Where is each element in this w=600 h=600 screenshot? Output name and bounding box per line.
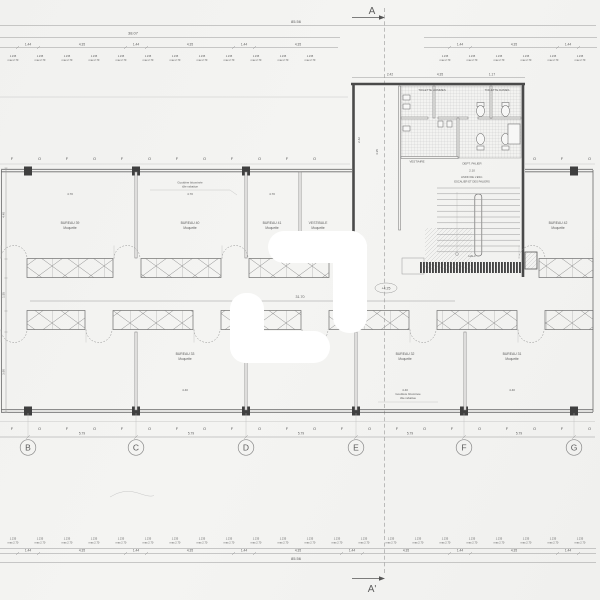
door-swing-arc <box>194 330 220 343</box>
facade-panel-letter: O <box>258 426 261 431</box>
facade-panel-letter: O <box>313 426 316 431</box>
toilet-right-label: TOILETTE DAMES <box>485 88 510 92</box>
dim-cluster: 1.235 <box>118 54 125 58</box>
grid-bubble-D: D <box>238 440 254 456</box>
room-floor-label: Moquette <box>265 226 279 230</box>
dim-text: 4.35 <box>79 43 85 47</box>
room-width-dim: 4.70 <box>67 192 73 196</box>
shaft <box>525 252 537 269</box>
grid-bubble-F: F <box>456 440 472 456</box>
partition-wall <box>135 332 137 410</box>
dim-cluster: 1.235 <box>118 537 125 541</box>
glazed-partition-strip <box>27 311 85 330</box>
dim-cluster: max 2.70 <box>548 58 559 62</box>
facade-panel-letter: F <box>176 426 179 431</box>
dim-cluster: 1.235 <box>226 54 233 58</box>
bay-dim: 5.79 <box>188 432 194 436</box>
dim-text: 1.44 <box>349 549 355 553</box>
dim-cluster: max 2.70 <box>332 541 343 545</box>
dim-text: 2.42 <box>357 137 361 143</box>
dim-cluster: 1.235 <box>64 537 71 541</box>
floor-plan-drawing: 85.56 38.07 A A' <box>0 0 600 600</box>
dim-cluster: max 2.70 <box>251 541 262 545</box>
dim-cluster: 1.235 <box>550 54 557 58</box>
facade-panel-letter: O <box>148 426 151 431</box>
facade-panel-letter: O <box>533 426 536 431</box>
room-width-dim: 4.40 <box>182 388 188 392</box>
dim-cluster: 1.235 <box>550 537 557 541</box>
dim-cluster: max 2.70 <box>62 58 73 62</box>
top-facade-wall <box>0 164 595 172</box>
dim-cluster: 1.235 <box>199 54 206 58</box>
dim-text: 1.44 <box>25 43 31 47</box>
facade-panel-letter: O <box>203 156 206 161</box>
shower <box>508 124 520 144</box>
dim-cluster: 1.235 <box>199 537 206 541</box>
facade-panel-letter: O <box>313 156 316 161</box>
grid-bubble-B: B <box>20 440 36 456</box>
dim-cluster: 1.235 <box>10 54 17 58</box>
dim-cluster: max 2.70 <box>548 541 559 545</box>
wc-bowl <box>502 106 510 117</box>
dim-cluster: max 2.70 <box>62 541 73 545</box>
facade-panel-letter: F <box>451 426 454 431</box>
facade-panel-letter: F <box>506 426 509 431</box>
dim-cluster: 1.235 <box>442 54 449 58</box>
dim-cluster: max 2.70 <box>278 58 289 62</box>
wc-bowl <box>477 106 485 117</box>
room-floor-label: Moquette <box>311 226 325 230</box>
bay-dim: 5.79 <box>79 432 85 436</box>
dim-text: 4.35 <box>295 549 301 553</box>
grid-letter: G <box>571 443 578 453</box>
glazed-partition-strip <box>545 311 593 330</box>
glazed-partition-strip <box>437 311 517 330</box>
dim-cluster: 1.235 <box>91 537 98 541</box>
glazed-partition-strip <box>141 259 221 278</box>
room-label: BUREAU 42 <box>549 221 568 225</box>
grid-letter: F <box>461 443 466 453</box>
dim-cluster: max 2.70 <box>251 58 262 62</box>
facade-panel-letter: F <box>286 156 289 161</box>
dim-text: 4.35 <box>437 73 443 77</box>
overall-dim-bottom: 85.56 <box>291 556 302 561</box>
wc-tank <box>477 146 484 150</box>
section-arrow-bottom <box>379 576 385 581</box>
vestibule-wall <box>399 86 401 230</box>
landing-label: DEPT. PALIER <box>462 162 481 166</box>
dim-cluster: 1.235 <box>361 537 368 541</box>
dim-text: 4.35 <box>403 549 409 553</box>
room-label: BUREAU 32 <box>396 352 415 356</box>
room-floor-label: Moquette <box>505 357 519 361</box>
dim-cluster: max 2.70 <box>575 541 586 545</box>
dim-cluster: 1.235 <box>145 537 152 541</box>
room-floor-label: Moquette <box>183 226 197 230</box>
facade-panel-letter: O <box>148 156 151 161</box>
dim-cluster: max 2.70 <box>197 58 208 62</box>
dim-cluster: 1.235 <box>469 54 476 58</box>
dim-cluster: 1.235 <box>37 537 44 541</box>
hall-label: HALL <box>468 254 476 258</box>
dim-cluster: 1.235 <box>496 537 503 541</box>
dim-cluster: 1.235 <box>388 537 395 541</box>
section-marker-top: A <box>352 6 385 20</box>
facade-panel-letter: F <box>561 156 564 161</box>
room-floor-label: Moquette <box>551 226 565 230</box>
grid-letter: D <box>243 443 249 453</box>
gutter-annotation-bottom: Gouttière bituminée tôle rabattue <box>378 392 438 402</box>
dim-cluster: max 2.70 <box>224 541 235 545</box>
glazed-partition-strip <box>539 259 593 278</box>
dim-cluster: max 2.70 <box>197 541 208 545</box>
dim-cluster: max 2.70 <box>575 58 586 62</box>
dim-cluster: 1.235 <box>280 537 287 541</box>
dim-text: 4.35 <box>79 549 85 553</box>
grid-letter: B <box>25 443 31 453</box>
room-label: BUREAU 33 <box>176 352 195 356</box>
partition-wall <box>464 332 466 410</box>
facade-panel-letter: O <box>478 426 481 431</box>
sink <box>403 95 410 100</box>
dim-cluster: max 2.70 <box>413 541 424 545</box>
facade-panel-letter: F <box>231 426 234 431</box>
dim-cluster: 1.235 <box>91 54 98 58</box>
facade-panel-letter: F <box>231 156 234 161</box>
dim-cluster: 1.235 <box>415 537 422 541</box>
dim-cluster: 1.235 <box>442 537 449 541</box>
dim-text: 1.44 <box>241 549 247 553</box>
facade-panel-letter: F <box>286 426 289 431</box>
facade-panel-letter: O <box>93 156 96 161</box>
dim-cluster: 1.235 <box>577 54 584 58</box>
dim-text: 1.55 <box>2 292 6 298</box>
stair-stringer <box>475 194 482 256</box>
facade-panel-letter: O <box>258 156 261 161</box>
dim-cluster: 1.235 <box>307 54 314 58</box>
dim-cluster: 1.235 <box>172 54 179 58</box>
facade-panel-letter: O <box>533 156 536 161</box>
dim-text: 1.44 <box>241 43 247 47</box>
section-label-a-prime: A' <box>368 584 377 595</box>
grid-bubble-E: E <box>348 440 364 456</box>
partial-dim-top: 38.07 <box>128 31 139 36</box>
facade-panel-letter: O <box>38 156 41 161</box>
facade-panel-letter: O <box>38 426 41 431</box>
sink <box>403 126 410 131</box>
door-swing-arc <box>86 330 112 343</box>
dim-text: 1.44 <box>457 43 463 47</box>
svg-text:tôle rabattue: tôle rabattue <box>182 185 198 189</box>
corridor-dim-text: 31.70 <box>296 295 305 299</box>
facade-panel-letter: F <box>11 426 14 431</box>
dim-cluster: max 2.70 <box>8 541 19 545</box>
bottom-facade-wall <box>0 410 595 422</box>
door-swing-arc <box>222 246 248 259</box>
block-bottom-wall <box>420 262 525 273</box>
facade-panel-letter: O <box>93 426 96 431</box>
facade-panel-letter: F <box>66 426 69 431</box>
dim-text: 4.35 <box>375 149 379 155</box>
room-label: BUREAU 31 <box>503 352 522 356</box>
stair-note-1: LIMON DE L'ESC. <box>461 175 483 179</box>
room-label: BUREAU 41 <box>263 221 282 225</box>
facade-panel-letter: O <box>203 426 206 431</box>
dim-cluster: 1.235 <box>226 537 233 541</box>
facade-panel-letter: O <box>423 426 426 431</box>
dim-cluster: max 2.70 <box>116 58 127 62</box>
dim-cluster: max 2.70 <box>467 541 478 545</box>
dim-cluster: max 2.70 <box>359 541 370 545</box>
dim-cluster: max 2.70 <box>278 541 289 545</box>
dim-text: 2.42 <box>387 73 393 77</box>
dim-cluster: 1.235 <box>577 537 584 541</box>
facade-panel-letter: F <box>341 426 344 431</box>
level-marker: +4.25 <box>375 283 397 293</box>
dim-cluster: 1.235 <box>523 54 530 58</box>
facade-panel-letter: F <box>11 156 14 161</box>
urinal <box>438 121 443 127</box>
gutter-annotation-top: Gouttière bituminée tôle rabattue <box>150 181 237 196</box>
dim-text: 4.35 <box>511 549 517 553</box>
partition-wall <box>135 172 137 258</box>
dim-cluster: max 2.70 <box>305 58 316 62</box>
stair-width-dim: 2.10 <box>469 169 475 173</box>
dim-cluster: max 2.70 <box>494 541 505 545</box>
room-width-dim: 4.40 <box>402 388 408 392</box>
room-floor-label: Moquette <box>63 226 77 230</box>
dim-cluster: max 2.70 <box>143 58 154 62</box>
dim-cluster: 1.235 <box>523 537 530 541</box>
partition-wall <box>355 332 357 410</box>
dim-cluster: 1.235 <box>496 54 503 58</box>
dim-cluster: max 2.70 <box>440 58 451 62</box>
facade-panel-letter: F <box>66 156 69 161</box>
glazed-partition-strip <box>27 259 113 278</box>
section-marker-bottom: A' <box>352 576 385 595</box>
room-label: BUREAU 39 <box>61 221 80 225</box>
room-width-dim: 4.40 <box>509 388 515 392</box>
room-label: VESTIBULE <box>309 221 328 225</box>
dim-cluster: 1.235 <box>334 537 341 541</box>
dim-cluster: max 2.70 <box>467 58 478 62</box>
dim-cluster: max 2.70 <box>224 58 235 62</box>
dim-cluster: max 2.70 <box>305 541 316 545</box>
svg-text:tôle rabattue: tôle rabattue <box>400 396 416 400</box>
grid-letter: C <box>133 443 139 453</box>
door-swing-arc <box>1 246 27 259</box>
glazed-partition-strip <box>113 311 193 330</box>
room-floor-label: Moquette <box>178 357 192 361</box>
dim-text: 4.35 <box>187 43 193 47</box>
dim-cluster: 1.235 <box>10 537 17 541</box>
pencil-scribble <box>110 491 154 497</box>
toilet-left-label: TOILETTE HOMMES <box>418 88 446 92</box>
dim-cluster: max 2.70 <box>170 541 181 545</box>
partition-wall <box>245 172 247 258</box>
dim-cluster: max 2.70 <box>8 58 19 62</box>
dim-cluster: 1.235 <box>172 537 179 541</box>
dim-cluster: max 2.70 <box>440 541 451 545</box>
dim-text: 4.35 <box>187 549 193 553</box>
level-marker-text: +4.25 <box>382 286 391 290</box>
dim-text: 4.35 <box>511 43 517 47</box>
bay-dim: 5.79 <box>298 432 304 436</box>
dim-text: 1.44 <box>565 43 571 47</box>
facade-panel-letter: F <box>121 156 124 161</box>
bay-dim: 5.79 <box>516 432 522 436</box>
dim-cluster: max 2.70 <box>89 541 100 545</box>
storage-label: VESTIAIRE <box>409 160 424 164</box>
column <box>570 167 578 176</box>
dim-cluster: max 2.70 <box>35 58 46 62</box>
dim-text: 1.17 <box>489 73 495 77</box>
stair-note-2: ESCALIER ET DES PALIERS <box>454 180 490 184</box>
dim-cluster: max 2.70 <box>143 541 154 545</box>
dim-text: 1.44 <box>565 549 571 553</box>
wc-bowl <box>477 134 485 145</box>
sanitary-block: TOILETTE HOMMES TOILETTE DAMES VESTIAIRE… <box>351 78 537 278</box>
urinal <box>447 121 452 127</box>
grid-letter: E <box>353 443 359 453</box>
dim-cluster: max 2.70 <box>116 541 127 545</box>
dim-cluster: max 2.70 <box>521 541 532 545</box>
dim-cluster: max 2.70 <box>35 541 46 545</box>
dim-cluster: 1.235 <box>253 54 260 58</box>
dim-cluster: max 2.70 <box>170 58 181 62</box>
dim-text: 1.44 <box>25 549 31 553</box>
facade-panel-letter: F <box>561 426 564 431</box>
bay-dim: 5.79 <box>407 432 413 436</box>
floor-plan-sheet: 85.56 38.07 A A' <box>0 0 600 600</box>
dim-cluster: 1.235 <box>253 537 260 541</box>
room-label: BUREAU 40 <box>181 221 200 225</box>
dim-cluster: max 2.70 <box>521 58 532 62</box>
facade-panel-letter: F <box>396 426 399 431</box>
dim-cluster: 1.235 <box>64 54 71 58</box>
dim-text: 4.40 <box>2 212 6 218</box>
wc-tank <box>502 146 509 150</box>
section-arrow-top <box>379 15 385 20</box>
dim-cluster: 1.235 <box>37 54 44 58</box>
dim-text: 3.90 <box>2 369 6 375</box>
dim-text: 1.44 <box>133 549 139 553</box>
column <box>24 167 32 176</box>
dim-cluster: max 2.70 <box>386 541 397 545</box>
room-width-dim: 4.70 <box>187 192 193 196</box>
dim-text: 1.44 <box>133 43 139 47</box>
facade-panel-letter: F <box>121 426 124 431</box>
sink <box>403 104 410 109</box>
door-swing-arc <box>1 330 27 343</box>
door-swing-arc <box>518 330 544 343</box>
facade-panel-letter: O <box>588 426 591 431</box>
room-floor-label: Moquette <box>398 357 412 361</box>
grid-bubble-C: C <box>128 440 144 456</box>
room-width-dim: 4.70 <box>269 192 275 196</box>
dim-cluster: 1.235 <box>469 537 476 541</box>
dim-text: 1.44 <box>457 549 463 553</box>
dim-cluster: 1.235 <box>307 537 314 541</box>
door-swing-arc <box>410 330 436 343</box>
grid-bubble-G: G <box>566 440 582 456</box>
section-label-a: A <box>369 6 376 17</box>
facade-panel-letter: O <box>368 426 371 431</box>
dim-cluster: max 2.70 <box>89 58 100 62</box>
facade-panel-letter: O <box>588 156 591 161</box>
dim-cluster: max 2.70 <box>494 58 505 62</box>
dim-cluster: 1.235 <box>280 54 287 58</box>
dim-cluster: 1.235 <box>145 54 152 58</box>
facade-panel-letter: F <box>176 156 179 161</box>
overall-dim-top: 85.56 <box>291 19 302 24</box>
dim-text: 4.35 <box>295 43 301 47</box>
